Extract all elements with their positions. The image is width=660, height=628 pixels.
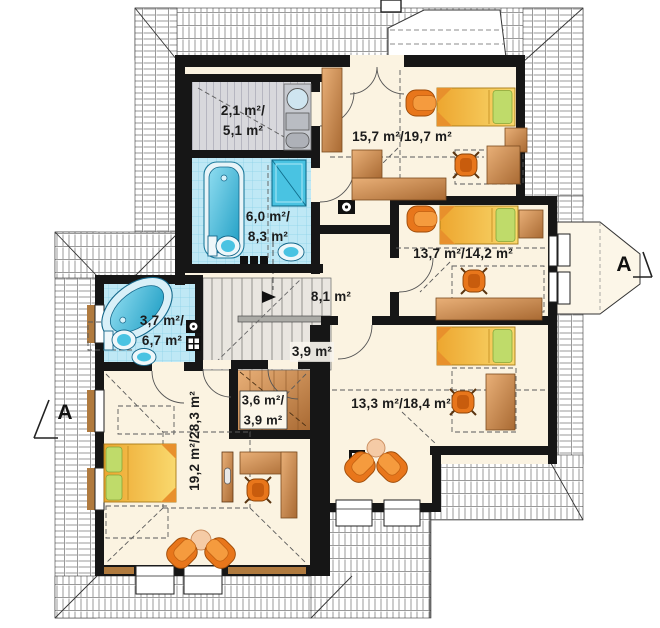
area-value: 3,6 m²/ <box>242 391 285 411</box>
label-bathroom-left: 3,7 m²/ 6,7 m² <box>140 311 184 352</box>
desk-chair <box>450 389 476 415</box>
wardrobe-top-fixtures <box>284 84 311 150</box>
desk-chair <box>453 152 479 178</box>
chimney <box>381 0 401 12</box>
desk-chair <box>245 477 271 503</box>
label-bathroom-main: 6,0 m²/ 8,3 m² <box>246 207 290 248</box>
sideboard <box>352 178 446 200</box>
label-master-bedroom: 19,2 m²/28,3 m² <box>185 391 205 491</box>
area-value: 19,2 m²/28,3 m² <box>185 391 205 491</box>
label-bedroom-bottom-right: 13,3 m²/18,4 m² <box>351 394 451 414</box>
label-wardrobe-top: 2,1 m²/ 5,1 m² <box>221 101 265 142</box>
section-marker-a-left: A <box>57 401 72 425</box>
bed <box>440 206 518 244</box>
sliding-door <box>222 452 233 502</box>
section-marker-a-right: A <box>616 253 631 277</box>
area-value: 3,9 m² <box>242 410 285 430</box>
area-value: 3,9 m² <box>292 342 332 362</box>
area-value: 15,7 m²/19,7 m² <box>352 127 452 147</box>
desk <box>487 146 520 184</box>
armchair <box>407 206 437 232</box>
wardrobe <box>322 68 342 152</box>
desk-return <box>281 452 297 518</box>
bed <box>437 88 515 126</box>
toilet <box>208 236 240 256</box>
stair-handrail <box>238 316 330 322</box>
cabinet <box>352 150 382 178</box>
label-hall: 8,1 m² <box>311 287 351 307</box>
toilet <box>104 330 136 350</box>
nightstand <box>519 210 543 238</box>
desk <box>436 298 542 320</box>
area-value: 3,7 m²/ <box>140 311 184 331</box>
area-value: 5,1 m² <box>221 121 265 141</box>
armchair <box>406 90 436 116</box>
area-value: 8,3 m² <box>246 227 290 247</box>
label-bedroom-right: 13,7 m²/14,2 m² <box>413 244 513 264</box>
label-staircase: 3,9 m² <box>290 342 334 362</box>
label-bedroom-top-right: 15,7 m²/19,7 m² <box>352 127 452 147</box>
area-value: 6,7 m² <box>140 331 184 351</box>
washbasin <box>287 89 308 110</box>
shower <box>272 160 306 206</box>
bed <box>437 327 515 365</box>
round-table <box>367 439 385 457</box>
area-value: 6,0 m²/ <box>246 207 290 227</box>
water-heater <box>286 133 309 148</box>
cabinet <box>286 113 309 130</box>
label-closet-small: 3,6 m²/ 3,9 m² <box>242 391 285 430</box>
desk <box>486 374 515 430</box>
area-value: 13,3 m²/18,4 m² <box>351 394 451 414</box>
area-value: 8,1 m² <box>311 287 351 307</box>
floor-plan-drawing <box>0 0 660 628</box>
area-value: 13,7 m²/14,2 m² <box>413 244 513 264</box>
desk-chair <box>461 268 487 294</box>
area-value: 2,1 m²/ <box>221 101 265 121</box>
floor-plan: 2,1 m²/ 5,1 m² 15,7 m²/19,7 m² 6,0 m²/ 8… <box>0 0 660 628</box>
double-bed <box>104 444 176 502</box>
